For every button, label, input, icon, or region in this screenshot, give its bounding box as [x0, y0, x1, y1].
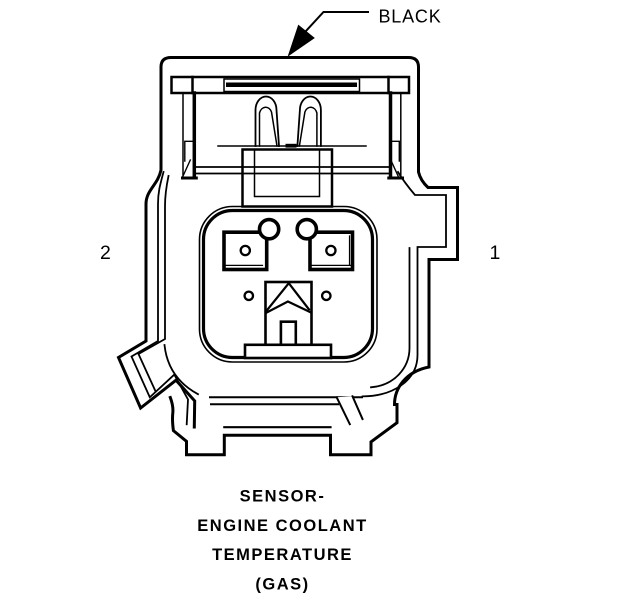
svg-text:1: 1 — [490, 242, 501, 264]
svg-text:(GAS): (GAS) — [255, 576, 309, 594]
svg-text:TEMPERATURE: TEMPERATURE — [212, 546, 353, 564]
svg-text:BLACK: BLACK — [379, 7, 442, 27]
svg-text:SENSOR-: SENSOR- — [240, 488, 326, 506]
svg-text:ENGINE COOLANT: ENGINE COOLANT — [197, 517, 367, 535]
svg-text:2: 2 — [100, 242, 111, 264]
